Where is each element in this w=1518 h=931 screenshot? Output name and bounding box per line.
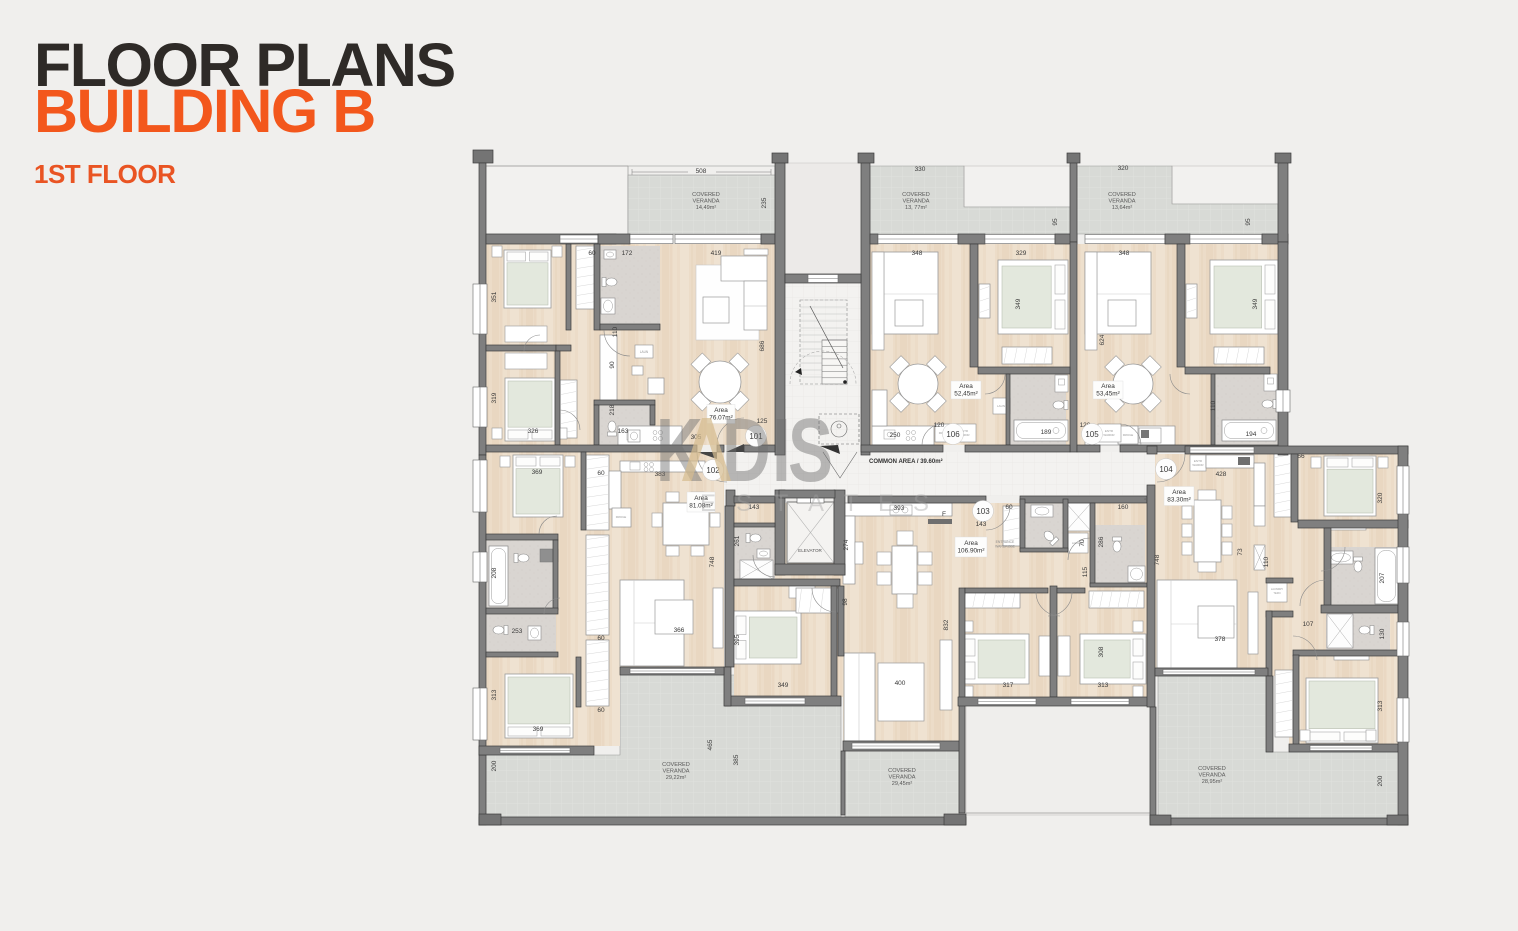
svg-text:LAUN: LAUN	[997, 404, 1005, 408]
svg-text:90: 90	[609, 361, 616, 369]
svg-text:F: F	[942, 511, 946, 518]
svg-text:329: 329	[1016, 250, 1027, 257]
svg-text:200: 200	[491, 760, 498, 771]
svg-text:VERANDA: VERANDA	[1108, 199, 1135, 205]
svg-text:419: 419	[711, 250, 722, 257]
svg-text:Area: Area	[1172, 489, 1186, 496]
svg-text:Area: Area	[1101, 383, 1115, 390]
svg-text:WARDR: WARDR	[1192, 463, 1204, 467]
svg-text:624: 624	[1099, 334, 1106, 345]
svg-text:110: 110	[1263, 556, 1270, 567]
svg-text:428: 428	[1216, 471, 1227, 478]
svg-text:E: E	[878, 490, 894, 517]
svg-text:T: T	[844, 490, 859, 517]
svg-text:465: 465	[707, 739, 714, 750]
svg-text:748: 748	[1154, 554, 1161, 565]
svg-text:308: 308	[1098, 646, 1105, 657]
svg-text:103: 103	[976, 507, 990, 516]
svg-text:115: 115	[1082, 566, 1089, 577]
svg-text:LAUNDRY: LAUNDRY	[1271, 587, 1284, 591]
svg-text:348: 348	[1119, 250, 1130, 257]
svg-text:313: 313	[1098, 682, 1109, 689]
svg-text:250: 250	[890, 432, 901, 439]
svg-text:52,45m²: 52,45m²	[954, 391, 977, 398]
svg-text:A: A	[808, 490, 824, 517]
svg-text:351: 351	[491, 291, 498, 302]
svg-text:320: 320	[1377, 492, 1384, 503]
svg-text:LAUN: LAUN	[640, 350, 649, 354]
svg-text:14,49m²: 14,49m²	[696, 205, 717, 211]
svg-text:163: 163	[618, 428, 629, 435]
svg-text:194: 194	[1246, 431, 1257, 438]
svg-text:E: E	[700, 490, 716, 517]
svg-text:274: 274	[843, 539, 850, 550]
svg-text:393: 393	[894, 505, 905, 512]
svg-text:S: S	[913, 490, 929, 517]
svg-text:313: 313	[491, 689, 498, 700]
svg-text:ELEVATOR: ELEVATOR	[798, 548, 822, 553]
svg-text:120: 120	[934, 422, 945, 429]
svg-text:1ST FLOOR: 1ST FLOOR	[34, 159, 176, 189]
svg-text:TERO: TERO	[1273, 591, 1280, 595]
svg-text:29,45m²: 29,45m²	[892, 781, 913, 787]
svg-text:330: 330	[915, 166, 926, 173]
svg-text:60: 60	[597, 707, 605, 714]
svg-text:349: 349	[1015, 298, 1022, 309]
svg-text:VERANDA: VERANDA	[1198, 773, 1225, 779]
svg-text:COMMON AREA / 39.60m²: COMMON AREA / 39.60m²	[869, 458, 943, 465]
svg-text:106.90m²: 106.90m²	[958, 548, 985, 555]
svg-text:COVERED: COVERED	[1198, 766, 1226, 772]
svg-text:FRIDGE: FRIDGE	[616, 515, 627, 519]
svg-text:385: 385	[733, 754, 740, 765]
svg-text:235: 235	[761, 197, 768, 208]
svg-text:686: 686	[759, 340, 766, 351]
svg-text:95: 95	[1052, 218, 1059, 226]
svg-text:349: 349	[778, 682, 789, 689]
svg-text:317: 317	[1003, 682, 1014, 689]
svg-text:S: S	[788, 400, 833, 501]
svg-text:13,64m²: 13,64m²	[1112, 205, 1133, 211]
svg-text:D: D	[722, 400, 771, 501]
svg-text:326: 326	[528, 428, 539, 435]
svg-text:160: 160	[1118, 504, 1129, 511]
svg-text:105: 105	[1085, 430, 1099, 439]
svg-text:T: T	[774, 490, 789, 517]
svg-text:107: 107	[1303, 621, 1314, 628]
svg-text:366: 366	[674, 627, 685, 634]
svg-text:COVERED: COVERED	[1108, 192, 1136, 198]
svg-text:748: 748	[709, 556, 716, 567]
svg-text:FRIDGE: FRIDGE	[1123, 433, 1134, 437]
svg-text:400: 400	[895, 680, 906, 687]
svg-text:348: 348	[912, 250, 923, 257]
svg-text:60: 60	[588, 250, 596, 257]
svg-text:ENTRANCE: ENTRANCE	[996, 540, 1015, 544]
svg-text:COVERED: COVERED	[888, 768, 916, 774]
svg-text:83.30m²: 83.30m²	[1167, 497, 1190, 504]
svg-text:110: 110	[1210, 400, 1217, 411]
svg-text:28,95m²: 28,95m²	[1202, 779, 1223, 785]
svg-text:Area: Area	[959, 383, 973, 390]
svg-text:189: 189	[1041, 429, 1052, 436]
svg-text:COVERED: COVERED	[902, 192, 930, 198]
svg-text:369: 369	[533, 726, 544, 733]
svg-text:208: 208	[491, 567, 498, 578]
svg-text:286: 286	[1098, 536, 1105, 547]
svg-text:261: 261	[734, 535, 741, 546]
svg-text:VERANDA: VERANDA	[662, 769, 689, 775]
svg-text:53,45m²: 53,45m²	[1096, 391, 1119, 398]
svg-text:143: 143	[976, 521, 987, 528]
svg-text:369: 369	[532, 469, 543, 476]
svg-text:106: 106	[946, 430, 960, 439]
svg-text:WARDROBE: WARDROBE	[995, 545, 1016, 549]
svg-text:98: 98	[842, 598, 849, 606]
svg-text:70: 70	[1079, 539, 1086, 547]
svg-text:COVERED: COVERED	[692, 192, 720, 198]
svg-text:Area: Area	[964, 540, 978, 547]
svg-text:60: 60	[597, 635, 605, 642]
svg-text:319: 319	[491, 392, 498, 403]
svg-text:395: 395	[734, 634, 741, 645]
svg-text:WARDR: WARDR	[1103, 433, 1115, 437]
svg-text:13, 77m²: 13, 77m²	[905, 205, 927, 211]
svg-text:218: 218	[609, 404, 616, 415]
svg-text:BUILDING B: BUILDING B	[34, 77, 375, 145]
svg-text:66: 66	[1297, 453, 1305, 460]
svg-text:VERANDA: VERANDA	[692, 199, 719, 205]
svg-text:349: 349	[1252, 298, 1259, 309]
svg-text:253: 253	[512, 628, 523, 635]
svg-text:VERANDA: VERANDA	[902, 199, 929, 205]
svg-text:COVERED: COVERED	[662, 762, 690, 768]
svg-text:130: 130	[1379, 628, 1386, 639]
svg-text:73: 73	[1237, 548, 1244, 556]
svg-text:320: 320	[1118, 165, 1129, 172]
svg-text:VERANDA: VERANDA	[888, 775, 915, 781]
svg-text:832: 832	[943, 619, 950, 630]
svg-text:508: 508	[696, 168, 707, 175]
svg-text:29,22m²: 29,22m²	[666, 775, 687, 781]
svg-text:110: 110	[612, 326, 619, 337]
svg-text:95: 95	[1245, 218, 1252, 226]
svg-text:104: 104	[1159, 465, 1173, 474]
svg-text:172: 172	[622, 250, 633, 257]
svg-text:207: 207	[1379, 572, 1386, 583]
svg-text:313: 313	[1377, 700, 1384, 711]
svg-text:60: 60	[1005, 504, 1013, 511]
svg-text:378: 378	[1215, 636, 1226, 643]
svg-text:200: 200	[1377, 775, 1384, 786]
svg-text:60: 60	[597, 470, 605, 477]
svg-text:S: S	[736, 490, 752, 517]
